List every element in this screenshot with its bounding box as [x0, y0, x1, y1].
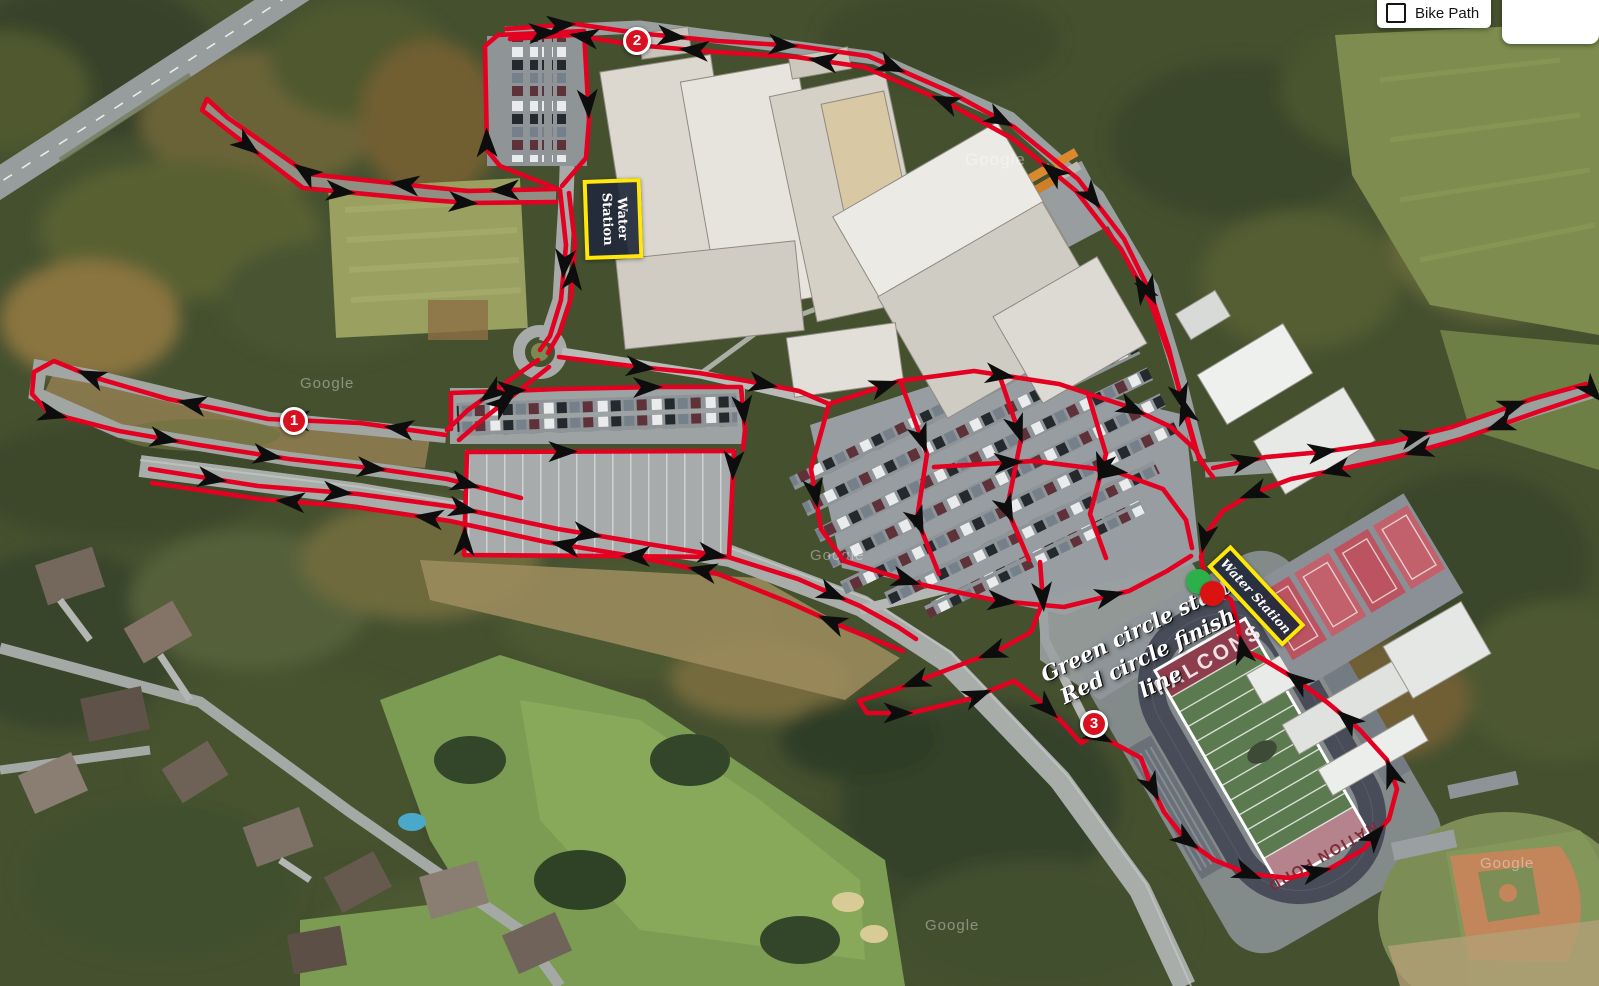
course-route-segment — [559, 357, 829, 404]
route-direction-arrow-icon — [974, 638, 1009, 668]
route-direction-arrow-icon — [73, 361, 109, 392]
route-direction-arrow-icon — [813, 606, 849, 637]
course-route-segment — [485, 31, 589, 189]
course-route-segment — [934, 461, 1192, 548]
satellite-map-canvas[interactable]: FALCONS NATION FORD — [0, 0, 1599, 986]
course-route-segment — [152, 483, 903, 651]
race-course-route — [0, 0, 1599, 986]
finish-dot — [1200, 581, 1225, 606]
route-direction-arrow-icon — [1114, 393, 1150, 425]
water-station-label-1: Water Station — [583, 178, 644, 260]
route-direction-arrow-icon — [907, 422, 937, 457]
bike-path-control[interactable]: Bike Path — [1377, 0, 1491, 28]
course-marker-1: 1 — [280, 407, 308, 435]
route-direction-arrow-icon — [1377, 755, 1407, 790]
route-direction-arrow-icon — [287, 155, 324, 189]
route-direction-arrow-icon — [1136, 770, 1168, 806]
route-direction-arrow-icon — [1093, 582, 1127, 610]
water-station-text: Water Station — [597, 192, 629, 246]
route-direction-arrow-icon — [867, 371, 902, 400]
course-route-segment — [464, 451, 734, 557]
bike-path-label: Bike Path — [1415, 5, 1479, 23]
route-direction-arrow-icon — [889, 566, 924, 595]
route-direction-arrow-icon — [1401, 437, 1436, 465]
course-marker-3: 3 — [1080, 710, 1108, 738]
course-route-segment — [811, 404, 844, 561]
course-route-segment — [901, 383, 939, 574]
route-direction-arrow-icon — [1230, 448, 1264, 475]
course-route-segment — [1201, 384, 1594, 572]
bike-path-checkbox[interactable] — [1386, 3, 1406, 23]
route-direction-arrow-icon — [1398, 422, 1432, 450]
route-direction-arrow-icon — [1574, 373, 1599, 409]
course-marker-2: 2 — [623, 27, 651, 55]
route-direction-arrow-icon — [1003, 412, 1033, 447]
route-direction-arrow-icon — [897, 667, 933, 697]
satellite-toggle-button[interactable]: Satellite — [1502, 0, 1599, 44]
route-direction-arrow-icon — [1192, 522, 1219, 556]
route-direction-arrow-icon — [1300, 858, 1334, 885]
route-direction-arrow-icon — [960, 680, 996, 711]
route-direction-arrow-icon — [1235, 478, 1270, 508]
route-direction-arrow-icon — [815, 578, 851, 609]
